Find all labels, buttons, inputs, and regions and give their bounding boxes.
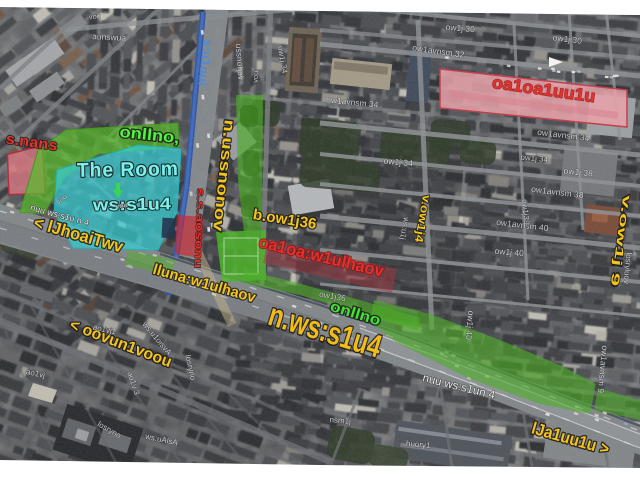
svg-text:vou: vou xyxy=(88,11,101,21)
svg-text:vou: vou xyxy=(250,70,260,83)
svg-text:The Room: The Room xyxy=(77,158,179,182)
svg-text:aunswua: aunswua xyxy=(92,31,127,43)
svg-text:nsm1j: nsm1j xyxy=(329,415,351,426)
svg-text:ws:s1u4: ws:s1u4 xyxy=(92,194,172,214)
